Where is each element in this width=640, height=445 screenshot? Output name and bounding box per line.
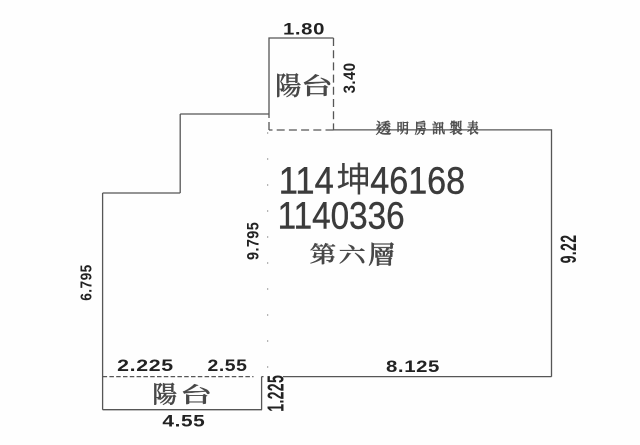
svg-text:1140336: 1140336 bbox=[278, 195, 405, 237]
svg-text:1.225: 1.225 bbox=[262, 375, 288, 412]
svg-text:1.80: 1.80 bbox=[283, 20, 325, 39]
svg-text:8.125: 8.125 bbox=[386, 357, 440, 376]
svg-text:4.55: 4.55 bbox=[162, 411, 205, 430]
svg-text:9.22: 9.22 bbox=[556, 235, 581, 264]
svg-text:9.795: 9.795 bbox=[245, 222, 263, 260]
svg-text:3.40: 3.40 bbox=[340, 62, 359, 93]
svg-text:2.55: 2.55 bbox=[208, 356, 248, 375]
svg-text:6.795: 6.795 bbox=[78, 264, 95, 301]
svg-text:2.225: 2.225 bbox=[117, 356, 174, 375]
